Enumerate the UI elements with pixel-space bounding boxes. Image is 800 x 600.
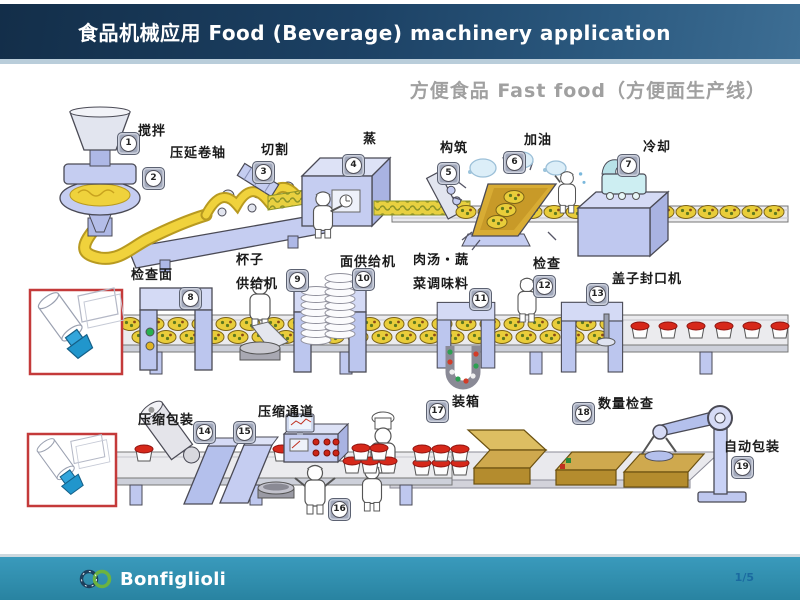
slide-footer: Bonfiglioli 1/5 <box>0 554 800 600</box>
station-label-3: 切割 <box>261 139 289 163</box>
station-number: 10 <box>355 271 372 288</box>
station-number: 4 <box>345 157 362 174</box>
station-label-13: 盖子封口机 <box>612 268 682 292</box>
bonfiglioli-logo: Bonfiglioli <box>78 567 226 591</box>
station-label-11: 肉汤・蔬 菜调味料 <box>413 249 469 297</box>
station-number: 5 <box>440 165 457 182</box>
station-number: 17 <box>429 403 446 420</box>
station-badge-5: 5 <box>437 162 460 185</box>
station-number: 11 <box>472 291 489 308</box>
station-badge-7: 7 <box>617 154 640 177</box>
station-label-15: 压缩通道 <box>258 401 314 425</box>
station-badge-2: 2 <box>142 167 165 190</box>
station-badge-16: 16 <box>328 498 351 521</box>
bonfiglioli-logo-text: Bonfiglioli <box>120 569 226 590</box>
station-number: 16 <box>331 501 348 518</box>
slide-header: 食品机械应用 Food (Beverage) machinery applica… <box>0 4 800 59</box>
station-badge-18: 18 <box>572 402 595 425</box>
station-number: 13 <box>589 286 606 303</box>
station-badge-10: 10 <box>352 268 375 291</box>
station-badge-6: 6 <box>503 151 526 174</box>
station-label-12: 检查 <box>533 253 561 277</box>
station-label-4: 蒸 <box>363 128 377 152</box>
station-number: 19 <box>734 459 751 476</box>
station-label-8: 检查面 <box>131 264 173 288</box>
station-badge-9: 9 <box>286 269 309 292</box>
station-number: 18 <box>575 405 592 422</box>
inset-gearmotor-1 <box>30 288 124 374</box>
station-number: 8 <box>182 290 199 307</box>
station-badge-15: 15 <box>233 421 256 444</box>
station-badge-11: 11 <box>469 288 492 311</box>
station-number: 2 <box>145 170 162 187</box>
station-badge-4: 4 <box>342 154 365 177</box>
station-label-17: 装箱 <box>452 391 480 415</box>
bonfiglioli-rings-icon <box>78 567 114 591</box>
station-number: 9 <box>289 272 306 289</box>
station-number: 6 <box>506 154 523 171</box>
station-badge-13: 13 <box>586 283 609 306</box>
station-number: 1 <box>120 135 137 152</box>
inset-gearmotor-2 <box>28 434 116 506</box>
station-label-5: 构筑 <box>440 137 468 161</box>
station-number: 12 <box>536 278 553 295</box>
station-badge-14: 14 <box>193 421 216 444</box>
station-label-7: 冷却 <box>643 136 671 160</box>
station-label-9: 杯子 供给机 <box>236 249 278 297</box>
station-badge-19: 19 <box>731 456 754 479</box>
station-label-2: 压延卷轴 <box>170 142 226 166</box>
station-badge-17: 17 <box>426 400 449 423</box>
page-number: 1/5 <box>735 571 754 584</box>
slide-subtitle: 方便食品 Fast food（方便面生产线） <box>410 76 766 103</box>
station-badge-8: 8 <box>179 287 202 310</box>
production-line-diagram <box>0 100 800 540</box>
station-badge-3: 3 <box>252 161 275 184</box>
station-label-6: 加油 <box>524 129 552 153</box>
station-badge-12: 12 <box>533 275 556 298</box>
station-number: 3 <box>255 164 272 181</box>
page-title: 食品机械应用 Food (Beverage) machinery applica… <box>78 4 671 59</box>
round-table <box>258 482 294 498</box>
header-divider <box>0 59 800 64</box>
slide: 食品机械应用 Food (Beverage) machinery applica… <box>0 0 800 600</box>
station-number: 15 <box>236 424 253 441</box>
station-badge-1: 1 <box>117 132 140 155</box>
station-label-14: 压缩包装 <box>138 409 194 433</box>
station-label-1: 搅拌 <box>138 120 166 144</box>
station-label-18: 数量检查 <box>598 393 654 417</box>
station-number: 14 <box>196 424 213 441</box>
station-number: 7 <box>620 157 637 174</box>
mixer-machine <box>60 107 140 236</box>
